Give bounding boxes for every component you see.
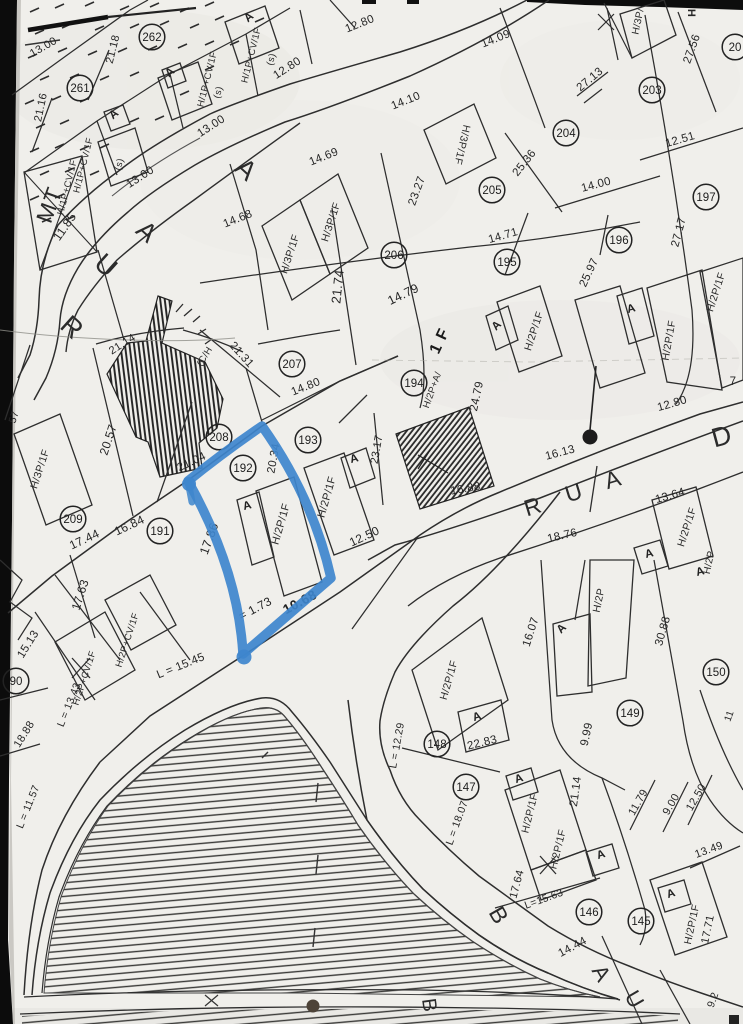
svg-text:204: 204 bbox=[556, 128, 576, 140]
svg-text:149: 149 bbox=[620, 708, 639, 720]
svg-text:90: 90 bbox=[10, 676, 23, 688]
svg-text:7: 7 bbox=[730, 376, 737, 388]
svg-text:203: 203 bbox=[642, 85, 661, 97]
svg-text:20: 20 bbox=[729, 42, 742, 54]
svg-text:145: 145 bbox=[631, 916, 650, 928]
svg-text:147: 147 bbox=[456, 782, 475, 794]
svg-text:195: 195 bbox=[497, 257, 516, 269]
svg-text:209: 209 bbox=[63, 514, 82, 526]
svg-text:197: 197 bbox=[696, 192, 715, 204]
svg-text:150: 150 bbox=[706, 667, 725, 679]
svg-text:H: H bbox=[685, 9, 697, 17]
svg-text:191: 191 bbox=[150, 526, 169, 538]
svg-text:194: 194 bbox=[404, 378, 424, 390]
svg-text:192: 192 bbox=[233, 463, 252, 475]
svg-text:262: 262 bbox=[142, 32, 161, 44]
svg-text:193: 193 bbox=[298, 435, 317, 447]
svg-text:205: 205 bbox=[482, 185, 501, 197]
svg-text:261: 261 bbox=[70, 83, 89, 95]
svg-text:196: 196 bbox=[609, 235, 628, 247]
svg-text:146: 146 bbox=[579, 907, 598, 919]
svg-text:206: 206 bbox=[384, 250, 403, 262]
svg-text:208: 208 bbox=[209, 432, 228, 444]
svg-text:207: 207 bbox=[282, 359, 301, 371]
svg-text:148: 148 bbox=[427, 739, 446, 751]
